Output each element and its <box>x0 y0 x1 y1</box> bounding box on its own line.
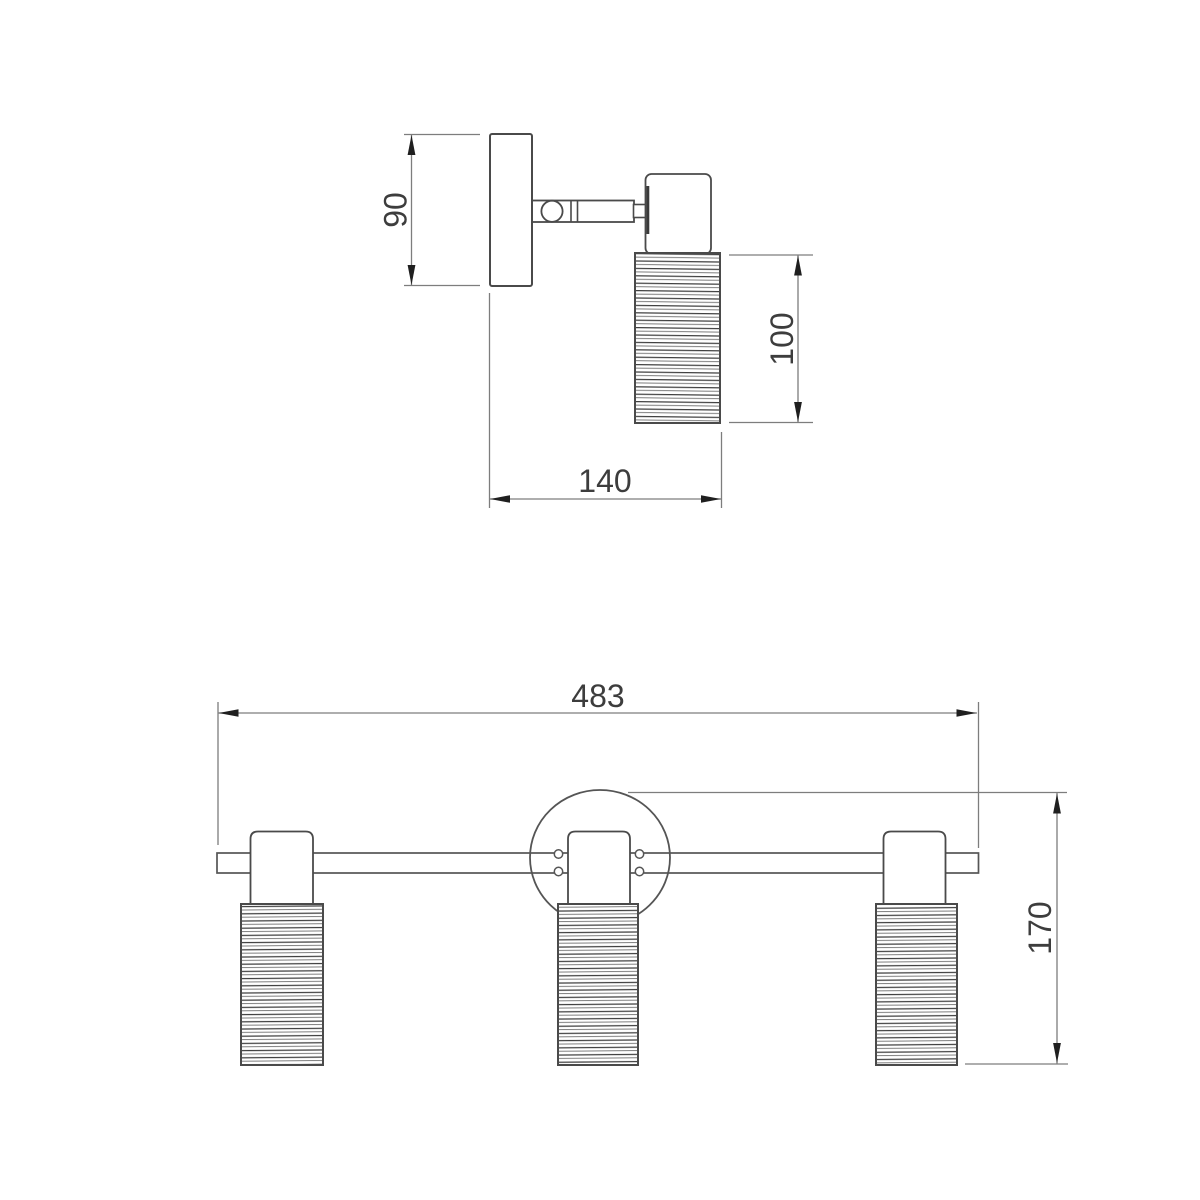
front-view: 483 170 <box>217 678 1068 1065</box>
arrowhead-down <box>408 265 416 285</box>
dim-140-label: 140 <box>578 463 631 499</box>
arrowhead-down <box>794 402 802 422</box>
dim-483-label: 483 <box>571 678 624 714</box>
arrowhead-up <box>408 135 416 155</box>
dim-100-label: 100 <box>764 312 800 365</box>
arrowhead-down <box>1053 1043 1061 1063</box>
dim-170-label: 170 <box>1022 901 1058 954</box>
pivot-joint <box>541 201 562 222</box>
side-view: 90 100 140 <box>378 134 814 508</box>
lamp-shade-right <box>876 904 957 1065</box>
lamp-dimension-drawing: 90 100 140 <box>0 0 1200 1200</box>
arrowhead-up <box>1053 794 1061 814</box>
dimension-90: 90 <box>378 135 481 286</box>
dimension-483: 483 <box>218 678 979 848</box>
screw-top-left <box>554 850 562 858</box>
lamp-head <box>646 174 712 254</box>
lamp-holder-center <box>568 832 630 907</box>
lamp-shade-side <box>635 253 720 423</box>
arrowhead-left <box>490 495 510 503</box>
arrowhead-right <box>957 709 977 717</box>
arrowhead-left <box>219 709 239 717</box>
dimension-170: 170 <box>628 793 1068 1065</box>
lamp-shade-center <box>558 904 638 1065</box>
screw-bottom-left <box>554 867 562 875</box>
technical-drawing-canvas: 90 100 140 <box>0 0 1200 1200</box>
dimension-100: 100 <box>729 255 813 423</box>
dim-90-label: 90 <box>378 192 414 228</box>
screw-top-right <box>635 850 643 858</box>
arrowhead-up <box>794 256 802 276</box>
arrowhead-right <box>701 495 721 503</box>
lamp-holder-right <box>884 832 946 907</box>
arm-end-stub <box>634 205 647 218</box>
mounting-plate <box>490 134 532 286</box>
lamp-holder-left <box>251 832 314 907</box>
screw-bottom-right <box>635 867 643 875</box>
lamp-shade-left <box>241 904 323 1065</box>
